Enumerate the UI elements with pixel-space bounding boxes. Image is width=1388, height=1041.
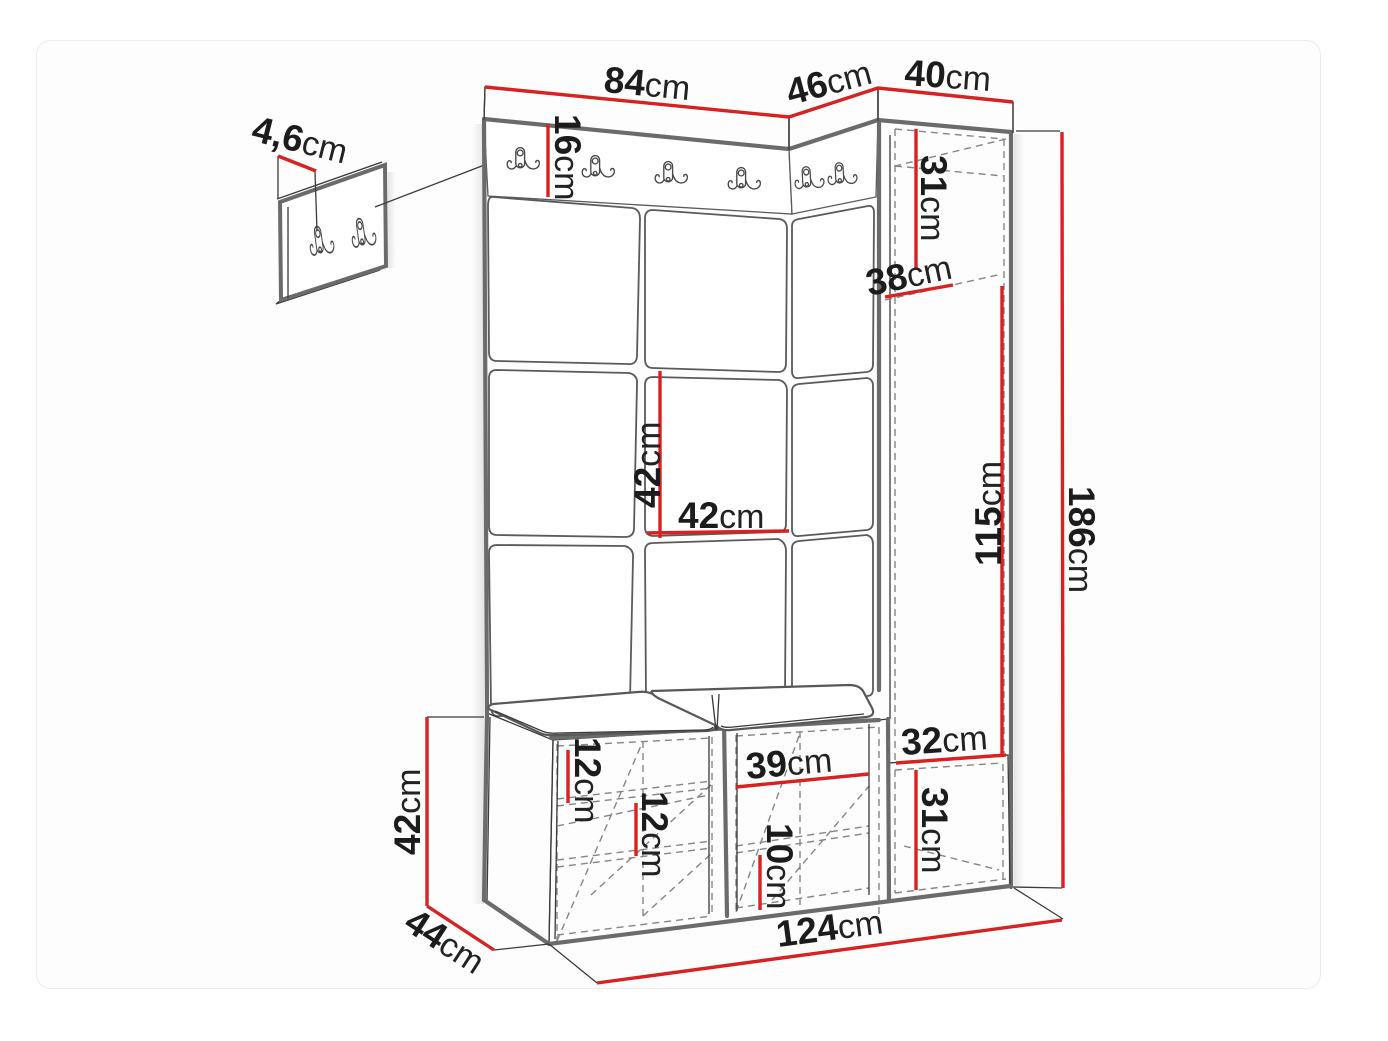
svg-text:186cm: 186cm [1061,486,1102,593]
svg-text:42cm: 42cm [678,495,764,536]
svg-text:31cm: 31cm [913,155,954,241]
svg-text:16cm: 16cm [547,114,588,200]
svg-text:10cm: 10cm [759,823,800,909]
svg-text:42cm: 42cm [387,769,428,855]
svg-text:12cm: 12cm [567,737,608,823]
svg-text:39cm: 39cm [744,739,834,787]
svg-text:42cm: 42cm [627,422,668,508]
svg-text:31cm: 31cm [914,787,955,873]
svg-text:32cm: 32cm [900,716,989,763]
svg-text:115cm: 115cm [968,461,1009,566]
svg-text:12cm: 12cm [634,791,675,877]
